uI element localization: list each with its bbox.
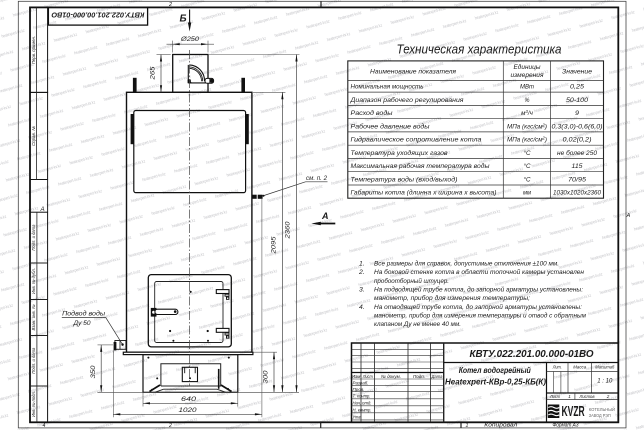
svg-text:Все размеры для справок, допус: Все размеры для справок, допустимые откл…: [374, 260, 559, 268]
svg-text:Лит.: Лит.: [552, 365, 562, 370]
svg-text:манометр, прибор для измерения: манометр, прибор для измерения температу…: [374, 311, 586, 319]
svg-text:Разраб.: Разраб.: [353, 381, 369, 386]
svg-text:пробоотборный штуцер.: пробоотборный штуцер.: [374, 277, 449, 285]
svg-text:1: 1: [466, 423, 469, 429]
svg-text:Единицы: Единицы: [514, 63, 541, 71]
svg-text:№ докум.: № докум.: [381, 374, 401, 379]
svg-text:115: 115: [572, 163, 584, 170]
svg-text:2.: 2.: [358, 269, 365, 276]
svg-text:3.: 3.: [359, 286, 365, 293]
svg-text:70/95: 70/95: [568, 176, 587, 183]
svg-text:°С: °С: [524, 162, 531, 170]
svg-text:МВт: МВт: [520, 84, 534, 91]
svg-text:Инв. № подл.: Инв. № подл.: [31, 391, 36, 417]
svg-text:Наименование показателя: Наименование показателя: [370, 68, 456, 75]
svg-text:Перв. примен.: Перв. примен.: [31, 36, 36, 64]
svg-text:клапаном Ду не менее 40 мм.: клапаном Ду не менее 40 мм.: [374, 321, 461, 328]
svg-text:2: 2: [168, 423, 172, 429]
svg-text:КОТЕЛЬНЫЙ: КОТЕЛЬНЫЙ: [589, 405, 615, 412]
svg-text:Листов: Листов: [579, 394, 595, 399]
svg-text:0,25: 0,25: [570, 84, 585, 91]
svg-text:мм: мм: [523, 190, 532, 197]
svg-text:Нач. отд.: Нач. отд.: [353, 401, 372, 406]
svg-text:Значение: Значение: [562, 68, 592, 75]
svg-text:1: 1: [568, 394, 571, 399]
svg-text:1020: 1020: [179, 408, 198, 414]
svg-text:см. п. 2: см. п. 2: [306, 176, 328, 182]
